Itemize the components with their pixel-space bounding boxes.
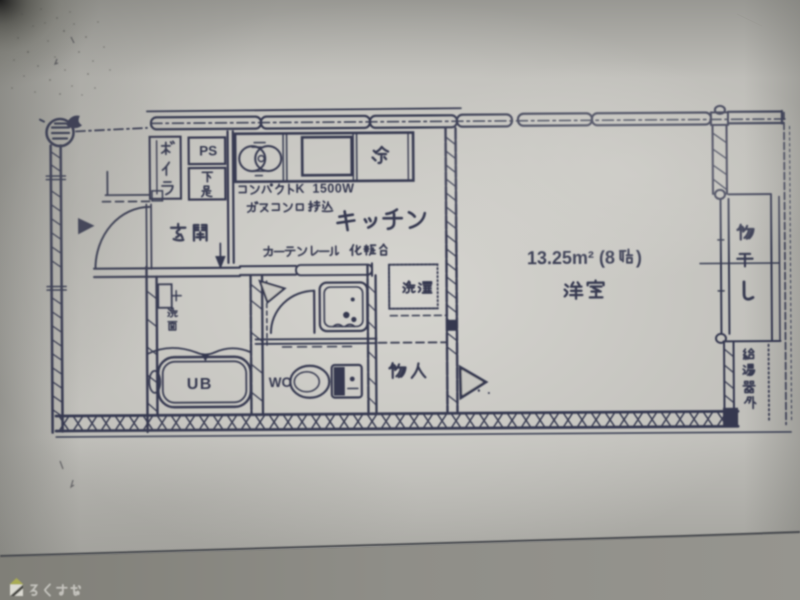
svg-text:1500W: 1500W — [312, 181, 354, 195]
svg-text:UB: UB — [187, 376, 213, 393]
svg-text:PS: PS — [199, 143, 217, 158]
svg-text:WC: WC — [269, 375, 292, 390]
svg-text:K: K — [295, 182, 304, 196]
